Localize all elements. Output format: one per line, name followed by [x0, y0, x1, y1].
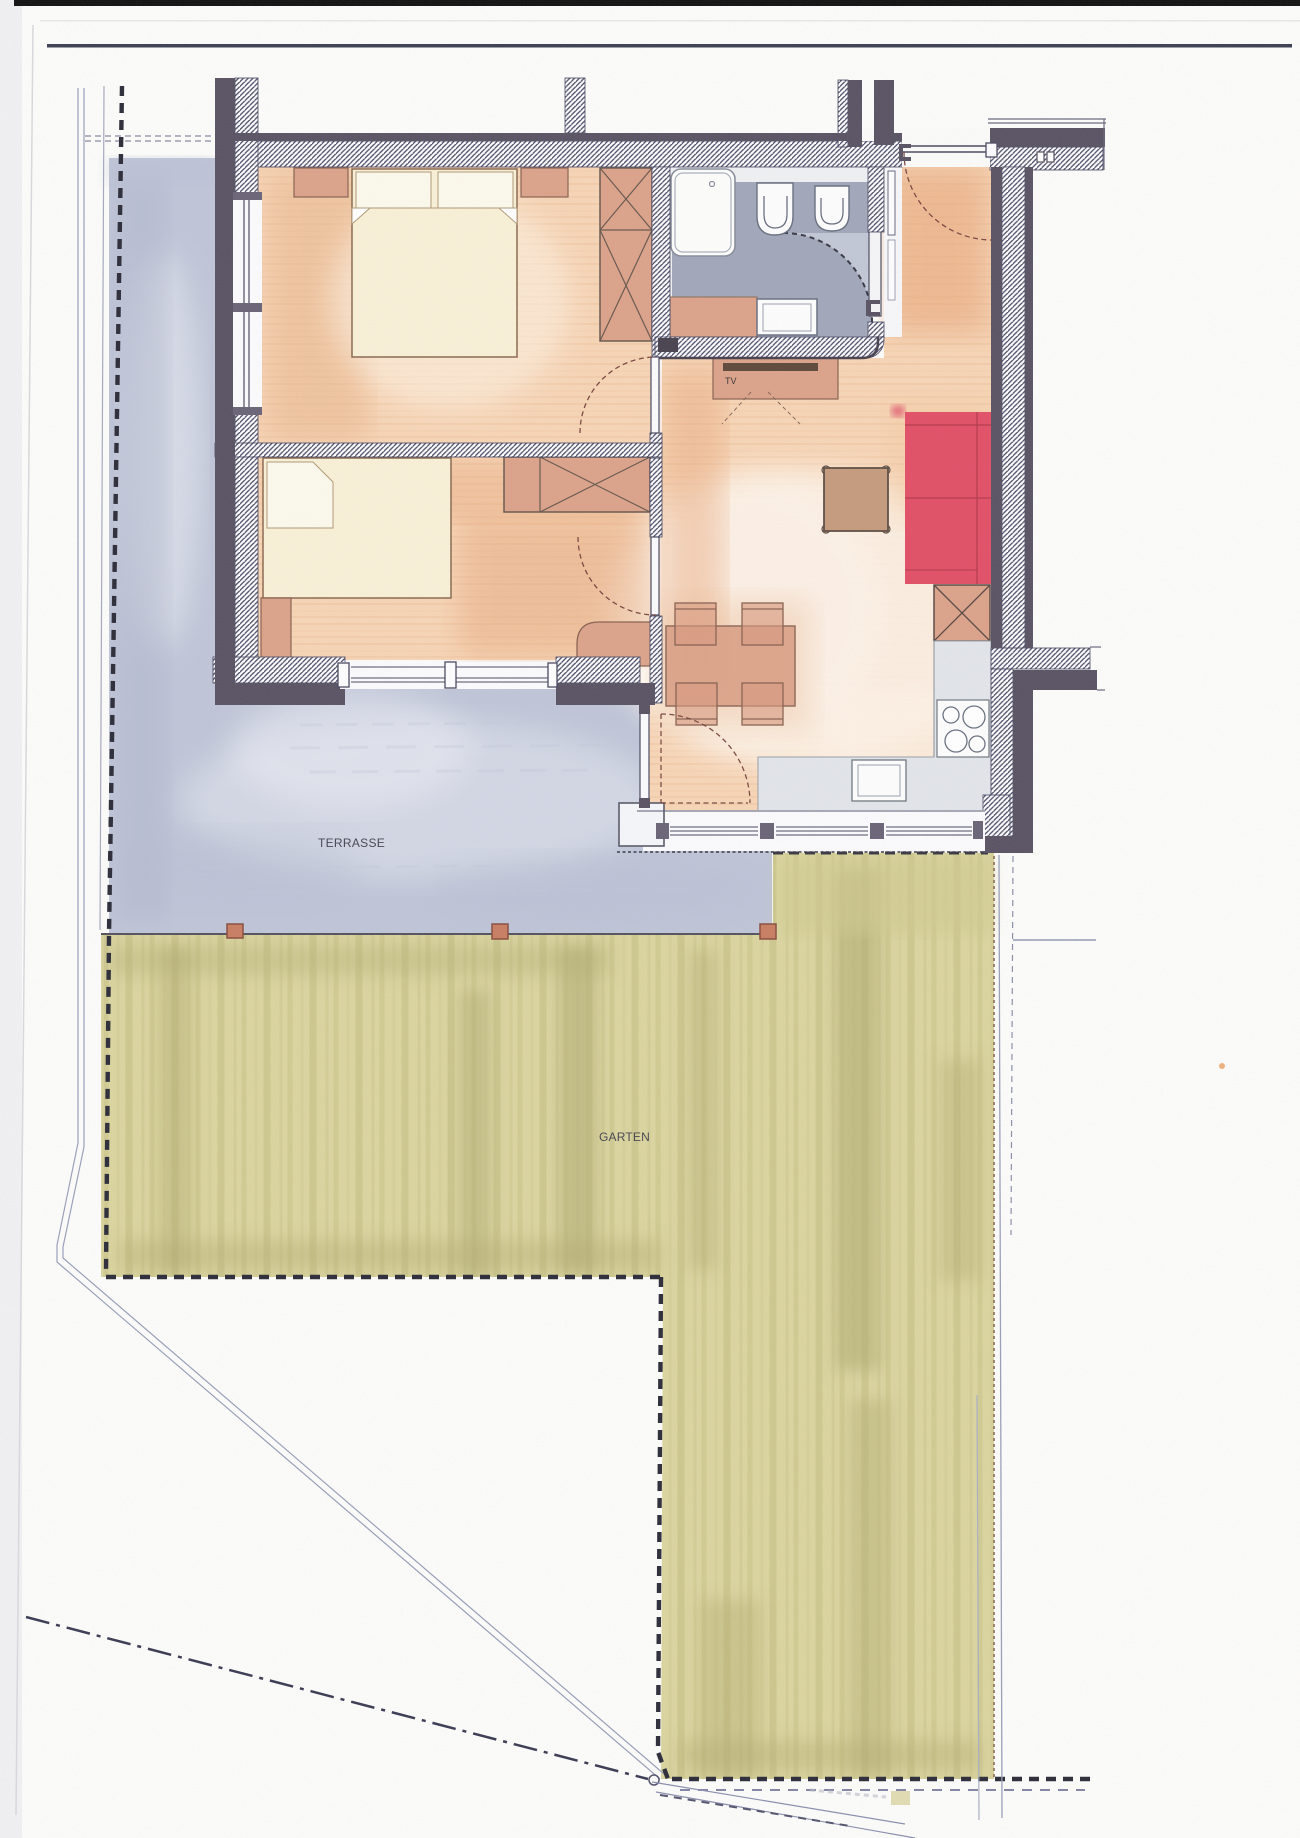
svg-text:TERRASSE: TERRASSE: [318, 836, 385, 850]
svg-text:GARTEN: GARTEN: [599, 1130, 650, 1144]
